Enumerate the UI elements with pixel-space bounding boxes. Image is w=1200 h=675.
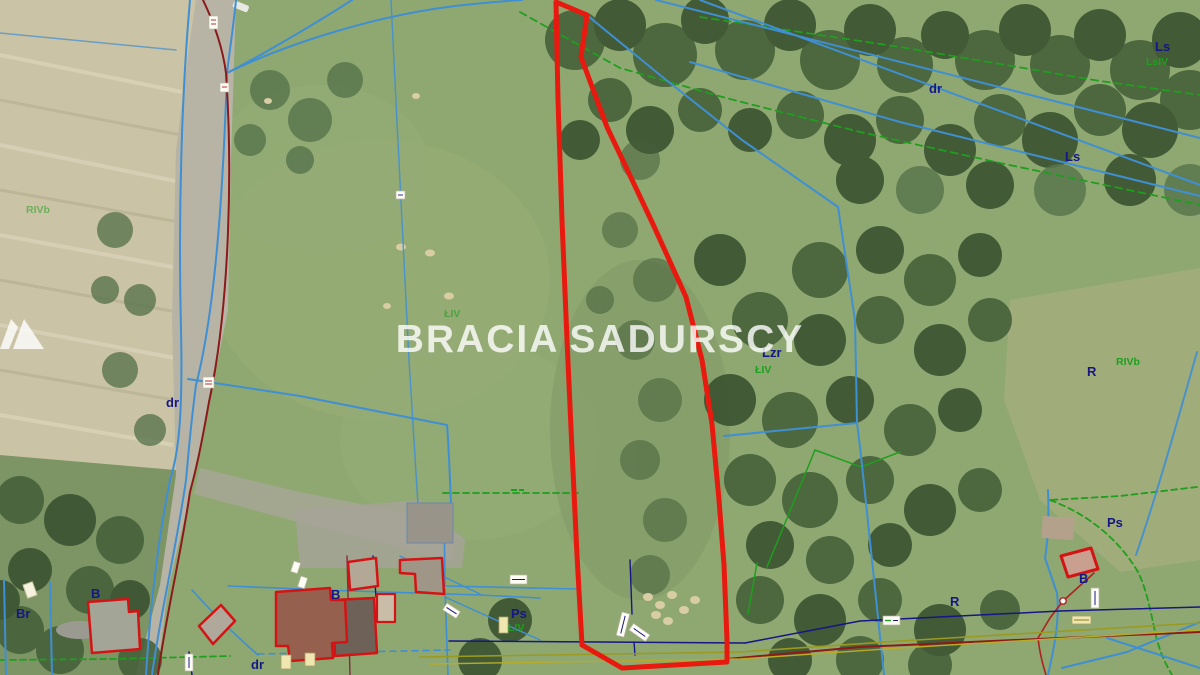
label-rivb-right: RIVb <box>1116 356 1140 368</box>
label-br-left: Br <box>16 606 30 621</box>
label-dr-forest-road: dr <box>929 81 942 96</box>
label-r-right: R <box>1087 364 1097 379</box>
label-ls-right: Ls <box>1065 149 1080 164</box>
small-building-outlined <box>377 594 395 622</box>
boundary-point-marker <box>1060 598 1066 604</box>
label-b-southeast: B <box>1079 571 1088 586</box>
label-ps-right: Ps <box>1107 515 1123 530</box>
label-liv-meadow: ŁIV <box>444 308 460 320</box>
label-dr-bottom: dr <box>251 657 264 672</box>
label-b-left: B <box>91 586 100 601</box>
photo-building <box>1041 516 1074 540</box>
label-r-bottom: R <box>950 594 960 609</box>
label-lsiv-topright: LsIV <box>1146 56 1168 68</box>
label-ps-bottom: Ps <box>511 606 527 621</box>
label-lzr: Lzr <box>762 345 782 360</box>
label-liv-center: ŁIV <box>755 364 771 376</box>
label-liv-bottom: ŁIV <box>508 622 524 634</box>
shed-outlined <box>348 558 378 590</box>
label-ls-topright: Ls <box>1155 39 1170 54</box>
label-b-house: B <box>331 587 340 602</box>
cadastral-map-screenshot: dr dr dr Ls LsIV Ls Lzr ŁIV ŁIV R RIVb R… <box>0 0 1200 675</box>
farm-building <box>407 503 453 543</box>
label-dr-left-road: dr <box>166 395 179 410</box>
label-rivb-field: RIVb <box>26 204 50 216</box>
cadastral-map: dr dr dr Ls LsIV Ls Lzr ŁIV ŁIV R RIVb R… <box>0 0 1200 675</box>
